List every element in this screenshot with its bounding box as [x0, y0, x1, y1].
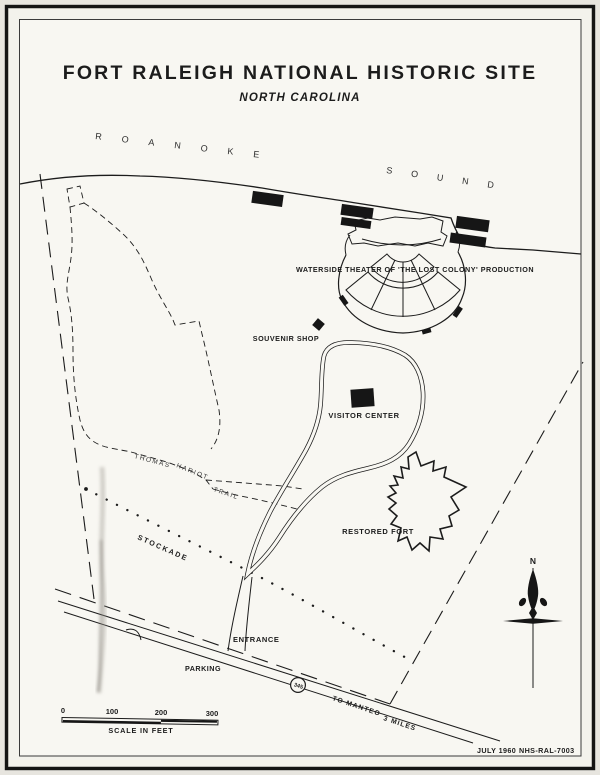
entrance-label: ENTRANCE: [233, 635, 279, 644]
parking-label: PARKING: [185, 664, 221, 673]
visitor-center-label: VISITOR CENTER: [328, 411, 399, 420]
scale-tick-0: 0: [61, 706, 65, 715]
scale-tick-300: 300: [206, 709, 219, 718]
map-drawing-id: NHS-RAL-7003: [519, 746, 575, 755]
fort-raleigh-map: FORT RALEIGH NATIONAL HISTORIC SITE NORT…: [0, 0, 600, 775]
visitor-center-building: [350, 388, 374, 408]
restored-fort-label: RESTORED FORT: [342, 527, 414, 536]
scale-tick-200: 200: [155, 708, 168, 717]
map-date: JULY 1960: [477, 746, 516, 755]
scale-caption: SCALE IN FEET: [108, 726, 173, 735]
map-page: FORT RALEIGH NATIONAL HISTORIC SITE NORT…: [0, 0, 600, 775]
north-label: N: [530, 556, 536, 566]
map-title: FORT RALEIGH NATIONAL HISTORIC SITE: [63, 62, 538, 84]
theater-label: WATERSIDE THEATER OF 'THE LOST COLONY' P…: [296, 265, 534, 274]
map-subtitle: NORTH CAROLINA: [239, 92, 360, 104]
footer: JULY 1960 NHS-RAL-7003: [477, 746, 575, 755]
souvenir-shop-label: SOUVENIR SHOP: [253, 334, 319, 343]
scale-tick-100: 100: [106, 707, 119, 716]
